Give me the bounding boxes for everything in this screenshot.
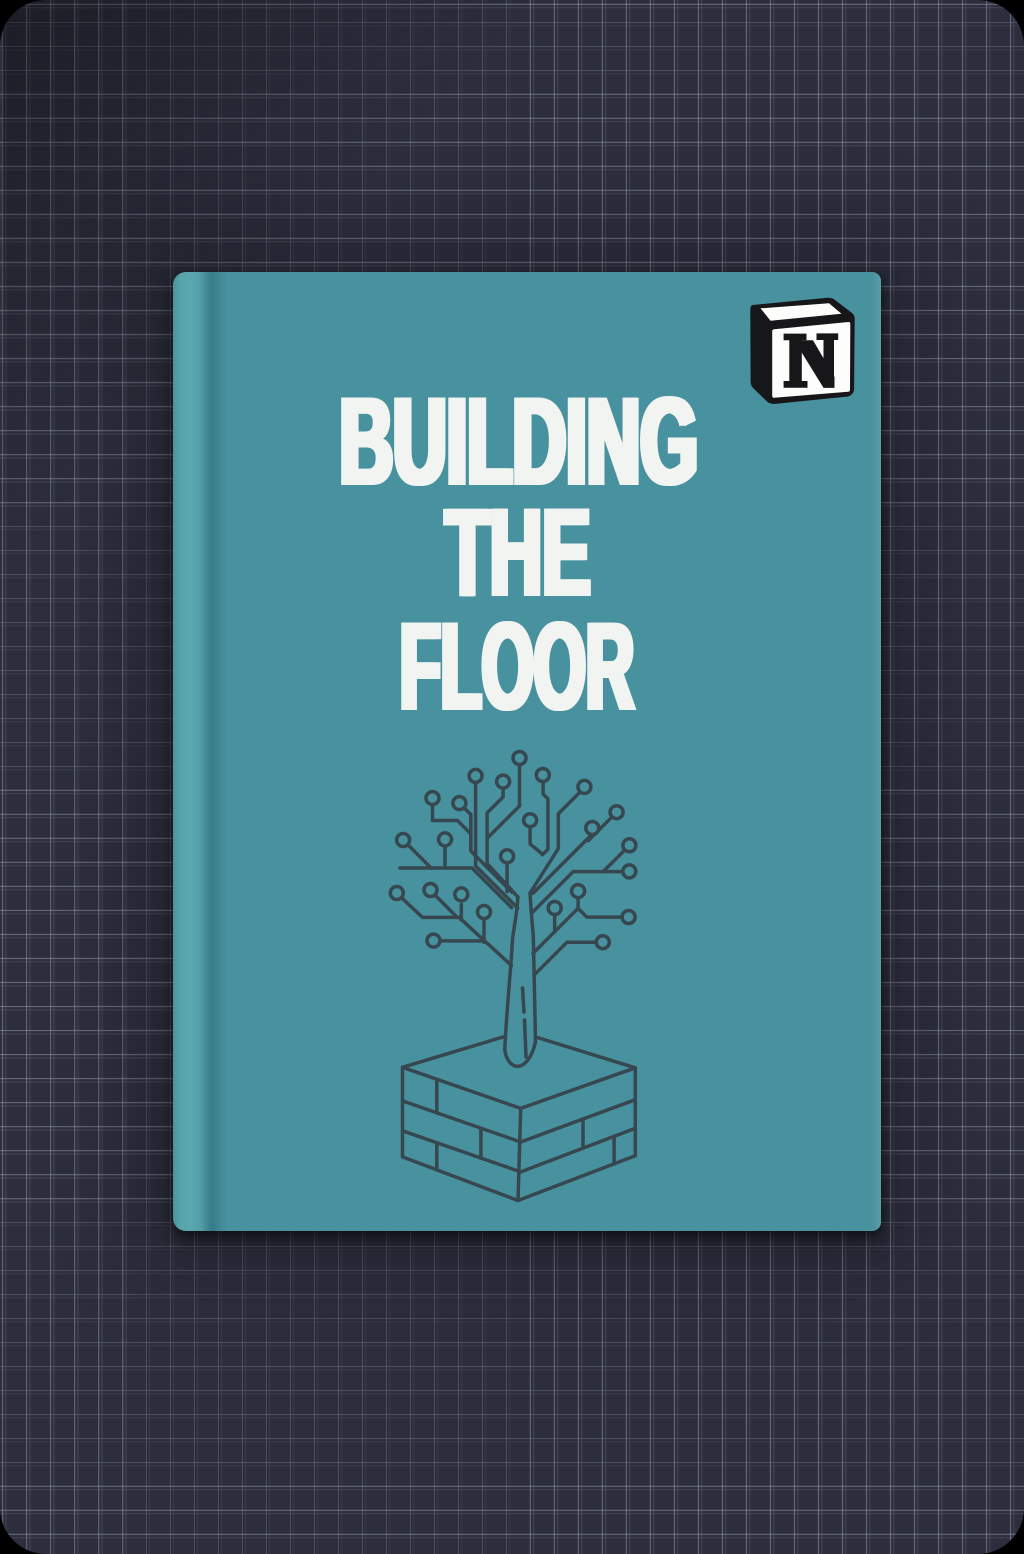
svg-text:FLOOR: FLOOR (402, 597, 636, 735)
